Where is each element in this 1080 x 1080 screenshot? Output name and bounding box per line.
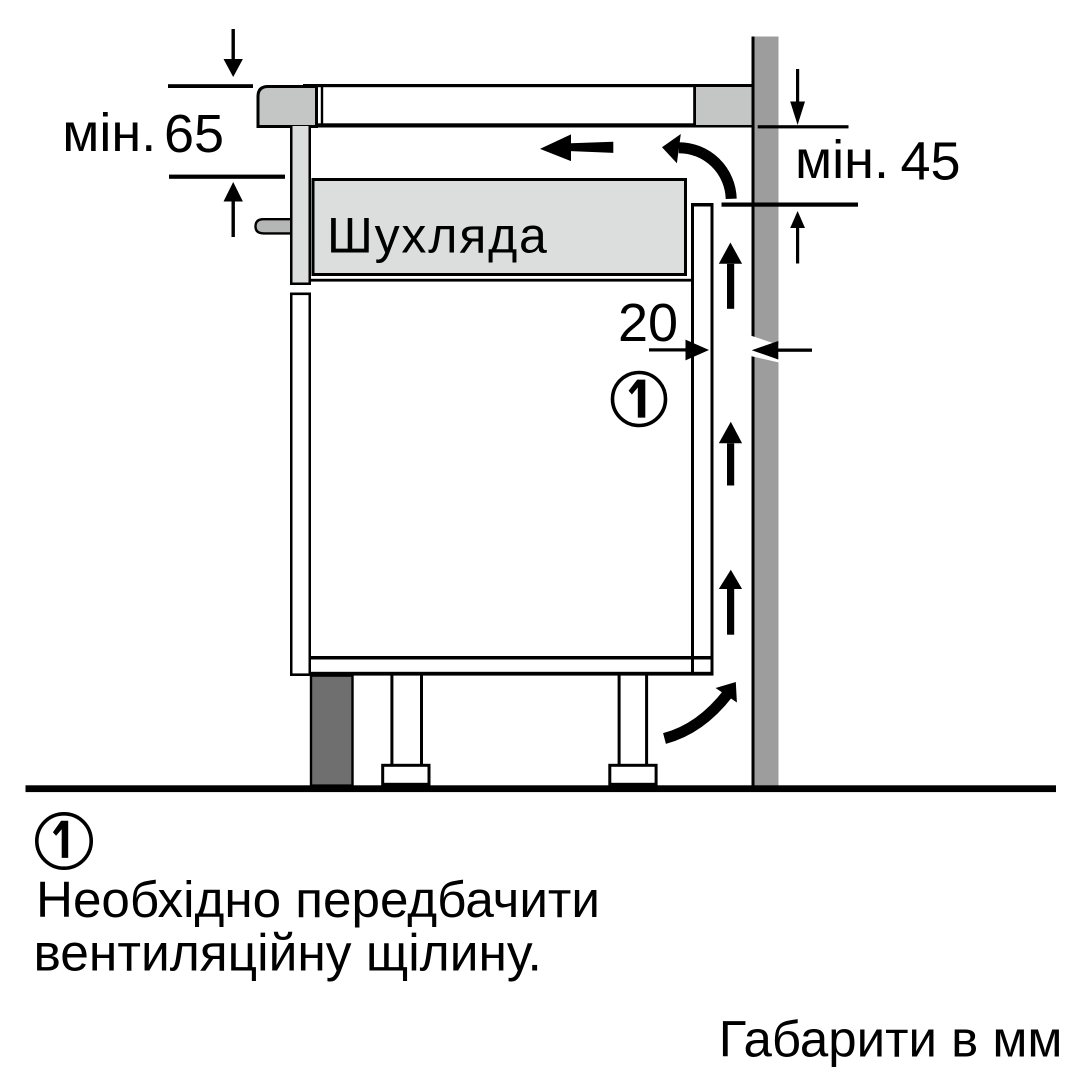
- svg-text:Габарити в мм: Габарити в мм: [719, 1010, 1063, 1067]
- svg-text:Шухляда: Шухляда: [327, 208, 549, 264]
- svg-text:мін.: мін.: [62, 103, 156, 163]
- svg-text:мін.: мін.: [795, 130, 889, 190]
- svg-text:45: 45: [901, 132, 961, 192]
- svg-text:65: 65: [164, 104, 224, 164]
- svg-text:20: 20: [618, 293, 678, 353]
- svg-text:вентиляційну щілину.: вентиляційну щілину.: [34, 924, 542, 982]
- svg-text:Необхідно передбачити: Необхідно передбачити: [36, 871, 600, 928]
